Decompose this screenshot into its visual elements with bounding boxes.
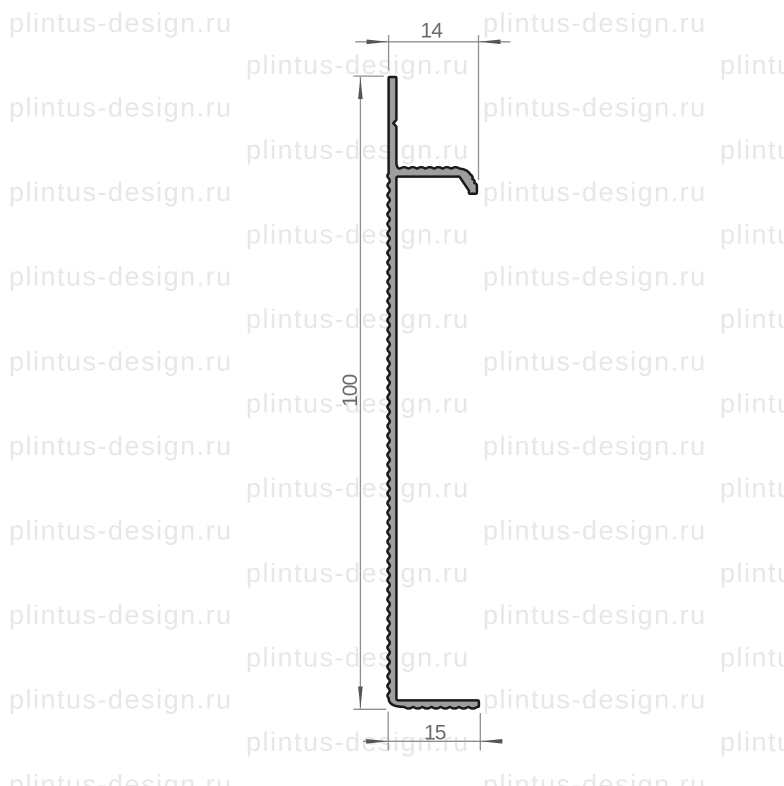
- svg-text:plintus-design.ru: plintus-design.ru: [720, 50, 784, 80]
- svg-text:plintus-design.ru: plintus-design.ru: [9, 8, 233, 38]
- svg-text:plintus-design.ru: plintus-design.ru: [720, 727, 784, 757]
- svg-text:plintus-design.ru: plintus-design.ru: [246, 219, 470, 249]
- svg-text:plintus-design.ru: plintus-design.ru: [720, 304, 784, 334]
- svg-text:plintus-design.ru: plintus-design.ru: [9, 769, 233, 786]
- svg-text:plintus-design.ru: plintus-design.ru: [720, 135, 784, 165]
- svg-text:plintus-design.ru: plintus-design.ru: [720, 642, 784, 672]
- svg-text:plintus-design.ru: plintus-design.ru: [483, 600, 707, 630]
- svg-text:plintus-design.ru: plintus-design.ru: [483, 346, 707, 376]
- svg-text:plintus-design.ru: plintus-design.ru: [9, 177, 233, 207]
- svg-text:plintus-design.ru: plintus-design.ru: [483, 93, 707, 123]
- svg-text:plintus-design.ru: plintus-design.ru: [246, 304, 470, 334]
- svg-text:plintus-design.ru: plintus-design.ru: [9, 346, 233, 376]
- svg-text:plintus-design.ru: plintus-design.ru: [720, 558, 784, 588]
- svg-text:14: 14: [421, 20, 444, 43]
- svg-text:plintus-design.ru: plintus-design.ru: [483, 177, 707, 207]
- svg-text:plintus-design.ru: plintus-design.ru: [483, 685, 707, 715]
- svg-text:plintus-design.ru: plintus-design.ru: [720, 473, 784, 503]
- svg-text:plintus-design.ru: plintus-design.ru: [9, 516, 233, 546]
- svg-text:plintus-design.ru: plintus-design.ru: [483, 262, 707, 292]
- svg-text:100: 100: [339, 375, 362, 407]
- svg-text:plintus-design.ru: plintus-design.ru: [246, 558, 470, 588]
- svg-text:plintus-design.ru: plintus-design.ru: [483, 516, 707, 546]
- svg-text:plintus-design.ru: plintus-design.ru: [483, 769, 707, 786]
- svg-text:plintus-design.ru: plintus-design.ru: [720, 389, 784, 419]
- svg-text:plintus-design.ru: plintus-design.ru: [9, 93, 233, 123]
- svg-text:plintus-design.ru: plintus-design.ru: [9, 431, 233, 461]
- svg-text:plintus-design.ru: plintus-design.ru: [9, 600, 233, 630]
- svg-text:plintus-design.ru: plintus-design.ru: [9, 685, 233, 715]
- svg-text:plintus-design.ru: plintus-design.ru: [9, 262, 233, 292]
- svg-text:plintus-design.ru: plintus-design.ru: [720, 219, 784, 249]
- svg-text:plintus-design.ru: plintus-design.ru: [246, 642, 470, 672]
- svg-text:15: 15: [424, 722, 446, 745]
- svg-text:plintus-design.ru: plintus-design.ru: [483, 8, 707, 38]
- svg-text:plintus-design.ru: plintus-design.ru: [246, 135, 470, 165]
- svg-text:plintus-design.ru: plintus-design.ru: [483, 431, 707, 461]
- svg-text:plintus-design.ru: plintus-design.ru: [246, 473, 470, 503]
